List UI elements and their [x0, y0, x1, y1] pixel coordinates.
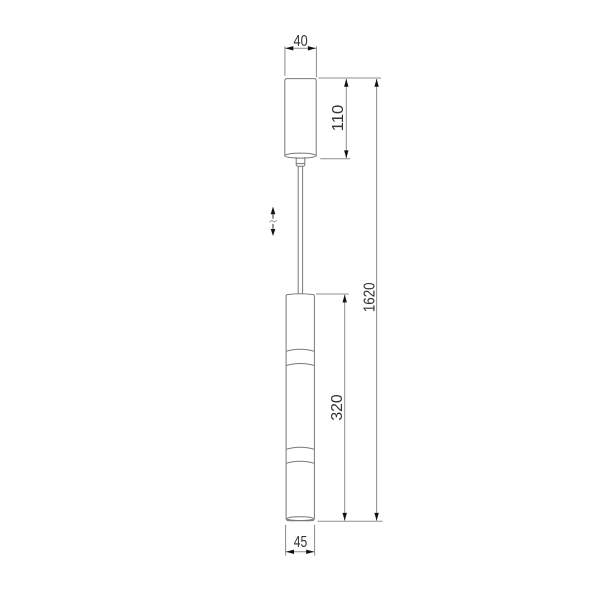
svg-text:1620: 1620 — [362, 282, 379, 312]
svg-text:320: 320 — [329, 394, 346, 421]
svg-text:45: 45 — [294, 533, 308, 551]
svg-text:110: 110 — [329, 105, 346, 132]
svg-text:40: 40 — [294, 33, 308, 51]
